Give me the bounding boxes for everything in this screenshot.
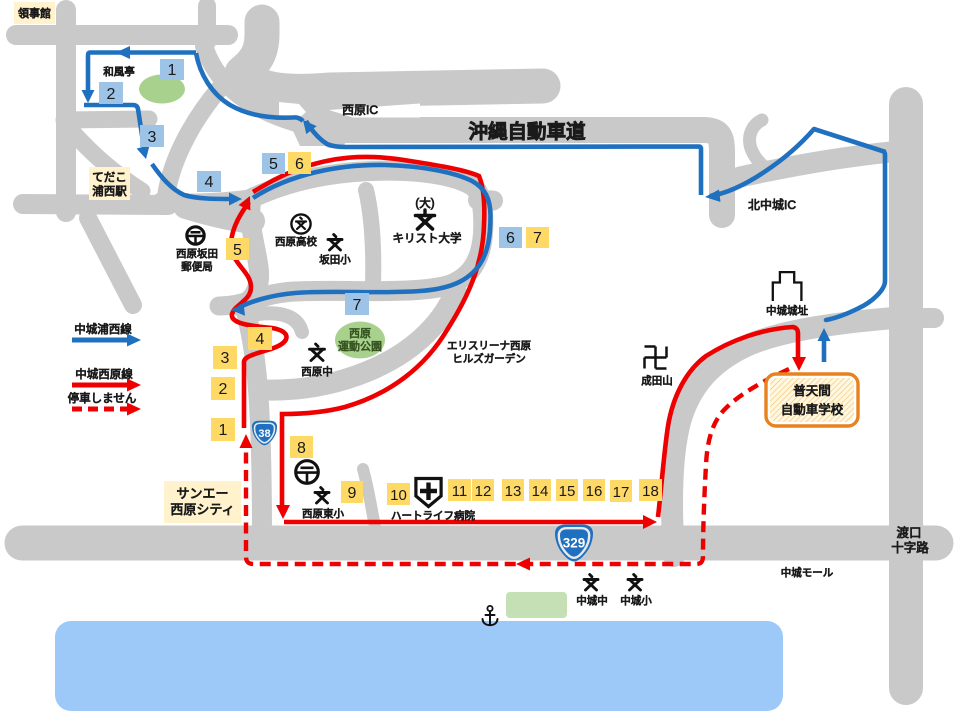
- svg-text:郵便局: 郵便局: [181, 260, 213, 273]
- svg-text:2: 2: [219, 381, 228, 398]
- svg-text:38: 38: [258, 428, 270, 440]
- svg-text:16: 16: [586, 483, 603, 500]
- svg-text:成田山: 成田山: [641, 375, 673, 387]
- svg-text:18: 18: [642, 483, 659, 500]
- svg-text:3: 3: [148, 129, 157, 146]
- svg-text:12: 12: [475, 483, 492, 500]
- svg-text:ハートライフ病院: ハートライフ病院: [391, 509, 475, 522]
- svg-text:領事館: 領事館: [18, 6, 51, 20]
- svg-text:11: 11: [452, 483, 468, 500]
- svg-text:2: 2: [107, 86, 116, 103]
- svg-text:渡口: 渡口: [896, 525, 921, 540]
- svg-text:1: 1: [168, 62, 177, 79]
- svg-text:14: 14: [532, 483, 549, 500]
- svg-text:中城中: 中城中: [576, 594, 608, 607]
- svg-text:10: 10: [390, 487, 407, 504]
- svg-text:西原東小: 西原東小: [302, 507, 344, 520]
- svg-text:西原: 西原: [349, 328, 371, 340]
- svg-text:キリスト大学: キリスト大学: [393, 231, 462, 245]
- svg-text:和風亭: 和風亭: [103, 65, 135, 78]
- svg-text:13: 13: [505, 483, 522, 500]
- svg-text:西原IC: 西原IC: [342, 103, 378, 117]
- svg-text:エリスリーナ西原: エリスリーナ西原: [447, 340, 531, 352]
- svg-text:中城西原線: 中城西原線: [75, 367, 133, 381]
- svg-text:西原中: 西原中: [301, 365, 333, 378]
- svg-text:5: 5: [269, 156, 278, 173]
- svg-text:17: 17: [613, 484, 630, 501]
- svg-text:ヒルズガーデン: ヒルズガーデン: [452, 352, 526, 365]
- svg-text:サンエー: サンエー: [176, 486, 228, 501]
- svg-text:十字路: 十字路: [891, 540, 929, 555]
- svg-text:北中城IC: 北中城IC: [748, 197, 796, 212]
- svg-text:6: 6: [506, 230, 515, 247]
- svg-text:普天間: 普天間: [793, 384, 831, 398]
- svg-text:自動車学校: 自動車学校: [781, 402, 844, 417]
- svg-text:6: 6: [295, 156, 304, 173]
- svg-text:8: 8: [297, 440, 306, 457]
- svg-text:7: 7: [353, 297, 362, 314]
- svg-text:3: 3: [221, 350, 230, 367]
- svg-text:中城小: 中城小: [620, 594, 652, 607]
- svg-text:15: 15: [559, 483, 576, 500]
- svg-text:329: 329: [563, 536, 586, 551]
- svg-text:4: 4: [256, 331, 265, 348]
- svg-text:4: 4: [205, 174, 214, 191]
- svg-text:中城城址: 中城城址: [766, 304, 808, 317]
- svg-text:浦西駅: 浦西駅: [92, 185, 127, 198]
- svg-text:西原シティ: 西原シティ: [170, 502, 234, 517]
- svg-text:西原高校: 西原高校: [275, 235, 317, 248]
- svg-text:坂田小: 坂田小: [319, 254, 351, 266]
- svg-text:7: 7: [533, 230, 542, 247]
- svg-text:停車しません: 停車しません: [68, 391, 137, 405]
- svg-text:中城浦西線: 中城浦西線: [74, 322, 132, 336]
- svg-text:中城モール: 中城モール: [781, 566, 834, 579]
- svg-text:5: 5: [233, 242, 242, 259]
- svg-text:運動公園: 運動公園: [338, 339, 382, 353]
- svg-text:(大): (大): [415, 196, 434, 210]
- svg-text:9: 9: [348, 485, 357, 502]
- svg-text:1: 1: [219, 422, 228, 439]
- svg-text:てだこ: てだこ: [92, 171, 127, 184]
- svg-text:沖縄自動車道: 沖縄自動車道: [468, 120, 586, 143]
- svg-text:西原坂田: 西原坂田: [176, 248, 218, 260]
